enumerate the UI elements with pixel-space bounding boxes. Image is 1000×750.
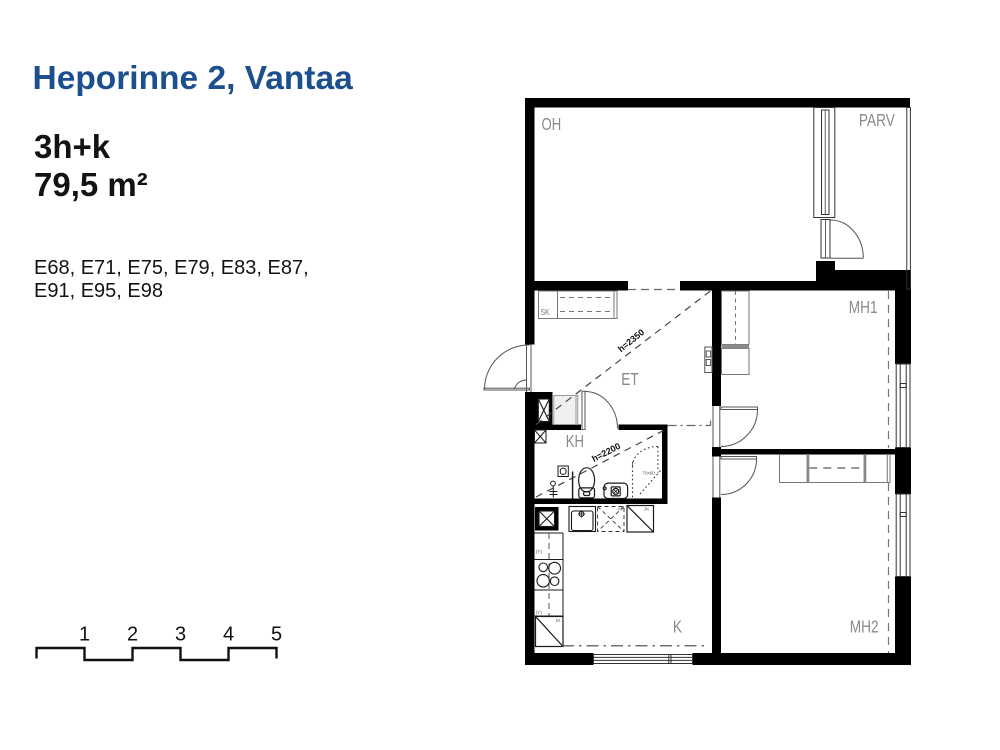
svg-text:OH: OH (542, 115, 562, 134)
svg-text:MH2: MH2 (850, 618, 879, 637)
svg-text:4: 4 (223, 624, 234, 646)
svg-text:M: M (556, 618, 560, 623)
svg-text:SK: SK (541, 307, 550, 317)
svg-text:MH1: MH1 (849, 298, 878, 317)
svg-text:KH: KH (566, 432, 584, 451)
svg-text:K: K (673, 618, 683, 637)
svg-text:(Y): (Y) (536, 549, 543, 554)
svg-text:1: 1 (79, 624, 90, 646)
svg-text:3: 3 (175, 624, 186, 646)
svg-text:PARV: PARV (859, 111, 895, 130)
svg-text:70x60: 70x60 (643, 471, 656, 476)
svg-text:5: 5 (271, 624, 282, 646)
svg-text:h=2350: h=2350 (616, 327, 646, 354)
svg-text:2: 2 (127, 624, 138, 646)
svg-text:(Y): (Y) (536, 610, 543, 615)
svg-text:JK: JK (644, 507, 649, 512)
svg-text:ET: ET (621, 370, 639, 389)
svg-text:AP: AP (618, 507, 624, 512)
